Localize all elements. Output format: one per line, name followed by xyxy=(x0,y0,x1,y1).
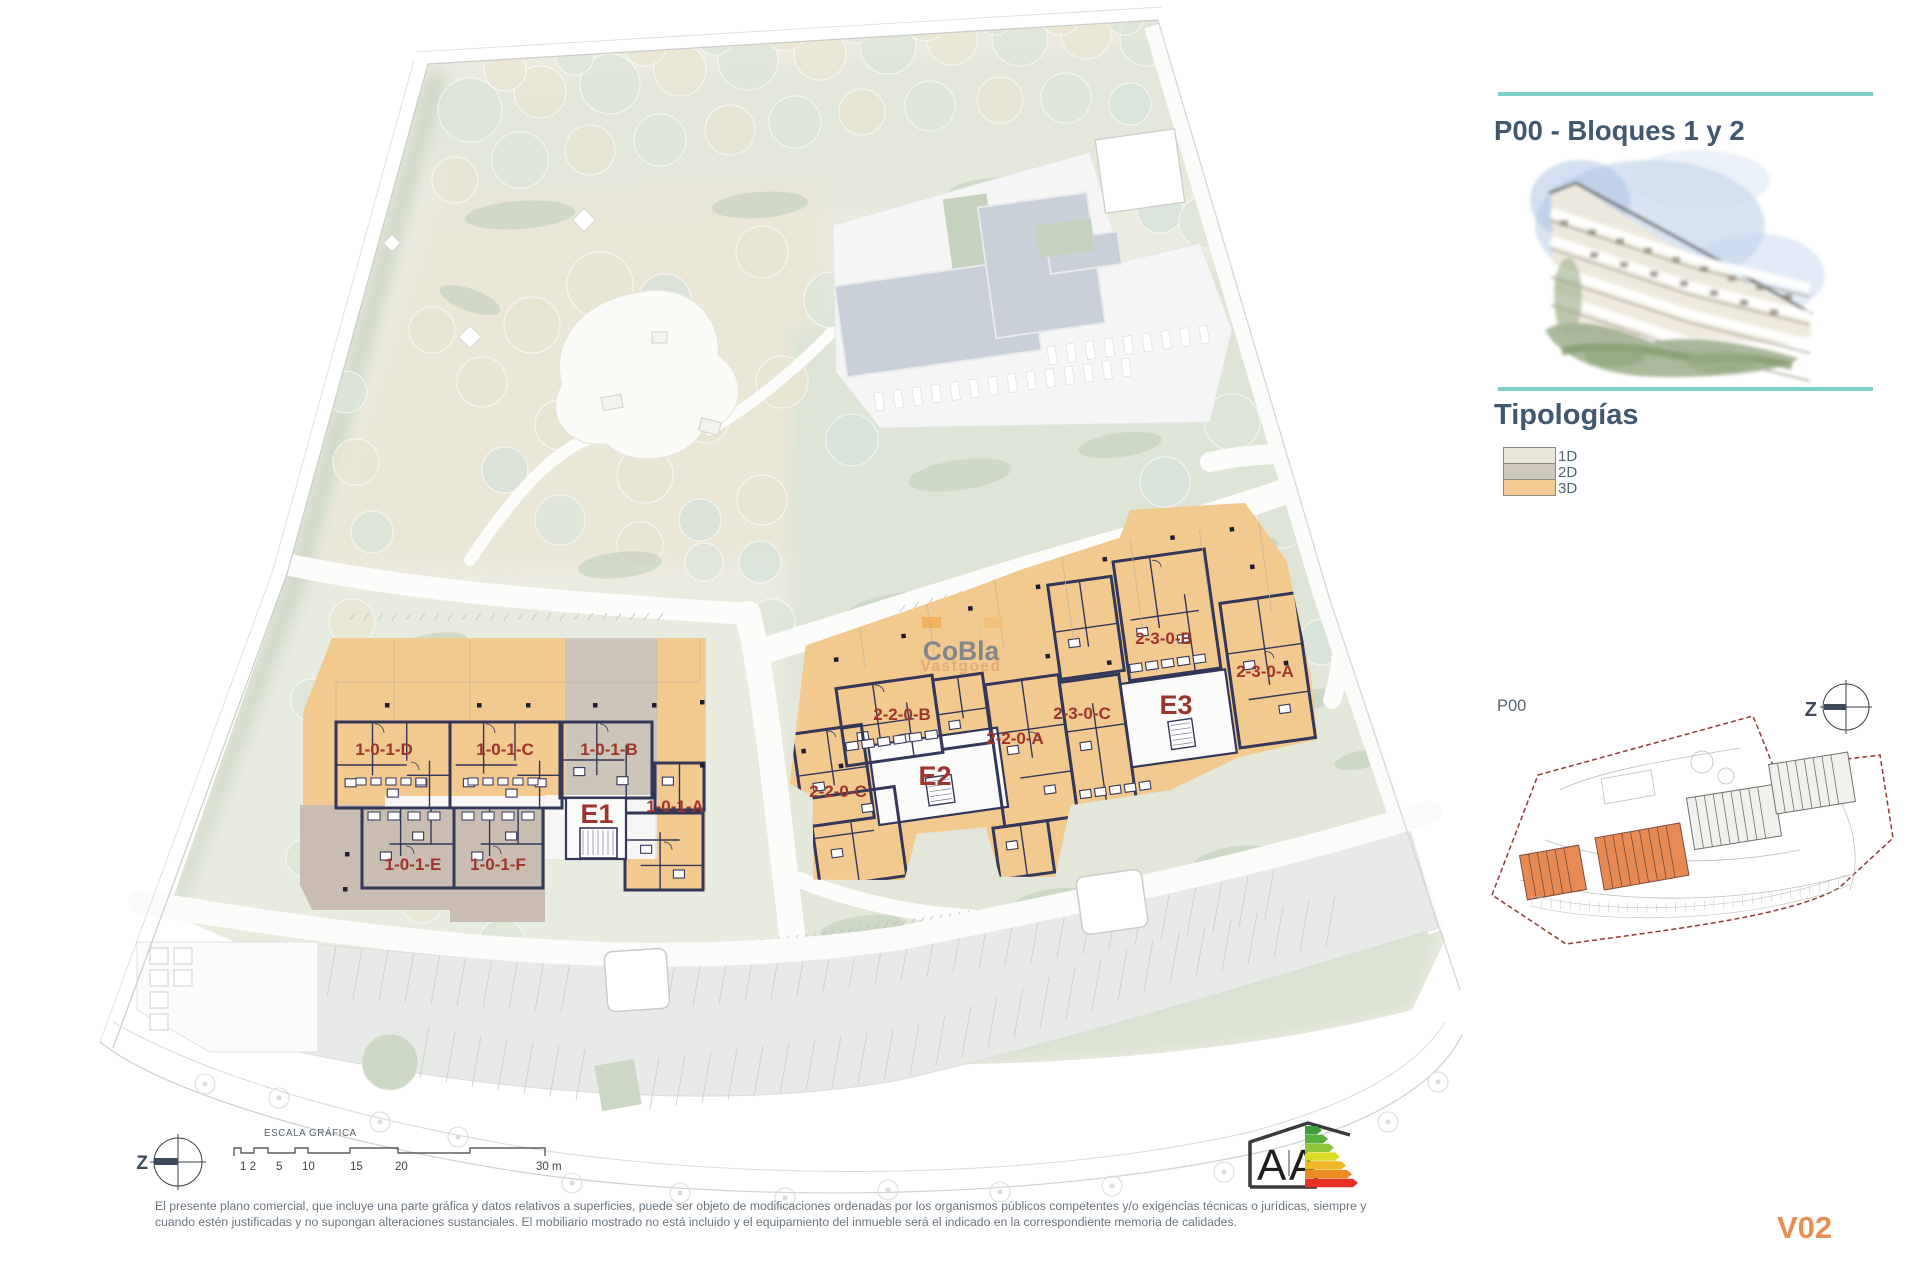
svg-text:20: 20 xyxy=(395,1161,408,1173)
svg-text:2-3-0-A: 2-3-0-A xyxy=(1236,662,1294,681)
svg-text:2-3-0-B: 2-3-0-B xyxy=(1135,629,1193,648)
svg-text:2-2-0-C: 2-2-0-C xyxy=(809,782,867,801)
svg-text:3D: 3D xyxy=(1558,480,1577,497)
svg-text:1-0-1-E: 1-0-1-E xyxy=(385,855,442,874)
svg-text:Vastgoed: Vastgoed xyxy=(921,658,1002,675)
svg-text:5: 5 xyxy=(276,1161,282,1173)
svg-text:2-2-0-A: 2-2-0-A xyxy=(986,729,1044,748)
svg-text:Z: Z xyxy=(136,1153,148,1174)
svg-text:Tipologías: Tipologías xyxy=(1494,399,1638,431)
svg-text:2-2-0-B: 2-2-0-B xyxy=(873,705,931,724)
svg-text:15: 15 xyxy=(350,1161,363,1173)
svg-text:1-0-1-D: 1-0-1-D xyxy=(355,740,413,759)
svg-text:Z: Z xyxy=(1805,699,1817,721)
svg-text:1D: 1D xyxy=(1558,448,1577,465)
svg-text:El presente plano comercial, q: El presente plano comercial, que incluye… xyxy=(155,1199,1367,1213)
svg-text:E3: E3 xyxy=(1159,690,1192,720)
svg-text:1-0-1-B: 1-0-1-B xyxy=(580,740,638,759)
svg-text:1-0-1-A: 1-0-1-A xyxy=(646,797,704,816)
svg-text:E1: E1 xyxy=(580,799,613,829)
svg-text:A: A xyxy=(1257,1141,1287,1190)
svg-text:1 2: 1 2 xyxy=(240,1161,256,1173)
svg-text:ESCALA GRÁFICA: ESCALA GRÁFICA xyxy=(264,1128,357,1139)
svg-text:2D: 2D xyxy=(1558,464,1577,481)
svg-text:E2: E2 xyxy=(918,761,951,791)
svg-text:1-0-1-C: 1-0-1-C xyxy=(476,740,534,759)
svg-text:cuando estén justificadas y no: cuando estén justificadas y no supongan … xyxy=(155,1215,1237,1229)
svg-text:30 m: 30 m xyxy=(536,1161,562,1173)
svg-text:10: 10 xyxy=(302,1161,315,1173)
svg-text:P00: P00 xyxy=(1497,697,1526,715)
svg-text:2-3-0-C: 2-3-0-C xyxy=(1053,704,1111,723)
svg-text:1-0-1-F: 1-0-1-F xyxy=(470,855,526,874)
svg-text:V02: V02 xyxy=(1777,1210,1832,1245)
svg-text:P00 - Bloques 1 y 2: P00 - Bloques 1 y 2 xyxy=(1494,115,1745,146)
